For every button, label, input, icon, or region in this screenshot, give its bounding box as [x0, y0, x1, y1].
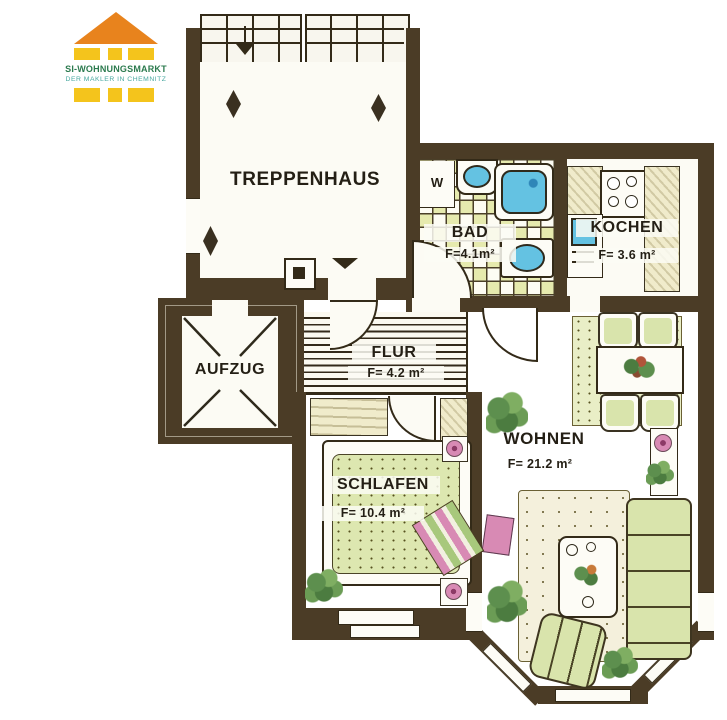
plant-icon [487, 578, 527, 626]
stove-icon [600, 170, 646, 218]
brand-tagline: DER MAKLER IN CHEMNITZ [62, 76, 170, 83]
burner [608, 196, 619, 207]
plant-icon [602, 646, 638, 680]
burner [625, 195, 638, 208]
door-opening [412, 296, 460, 312]
logo-block [128, 48, 154, 60]
stair-down-arrow-icon [236, 44, 254, 55]
sink-basin [463, 165, 491, 188]
bathtub-icon [494, 163, 554, 221]
stair-divider [300, 14, 307, 62]
coffee-table [558, 536, 618, 618]
floor-edge-line [466, 312, 468, 392]
wall [292, 392, 306, 640]
washer-label: W [420, 175, 454, 190]
logo-roof-icon [74, 12, 158, 44]
flower-icon [654, 434, 672, 452]
area-label-bad: F=4.1m² [424, 247, 516, 262]
bay-wall [538, 686, 648, 704]
logo-block [74, 88, 100, 102]
door-opening [570, 296, 600, 312]
flower-pot [440, 578, 468, 606]
window [698, 592, 714, 632]
floorplan-scan: SI-WOHNUNGSMARKT DER MAKLER IN CHEMNITZ … [0, 0, 727, 720]
door-opening [328, 278, 376, 300]
window [466, 592, 482, 632]
table-item [566, 544, 578, 556]
table-item [586, 542, 596, 552]
area-label-kochen: F= 3.6 m² [576, 248, 678, 263]
schlafen-door-arc [388, 396, 436, 442]
logo-block [108, 48, 122, 60]
room-label-bad: BAD [424, 224, 516, 242]
room-label-aufzug: AUFZUG [185, 362, 275, 378]
washing-machine-slot: W [420, 161, 455, 208]
tub-basin [501, 170, 547, 214]
logo-block [74, 48, 100, 60]
sofa [626, 498, 692, 660]
stair-arrow-stem [244, 26, 246, 44]
table-flowers-icon [620, 352, 658, 384]
area-label-schlafen: F= 10.4 m² [322, 506, 424, 521]
area-label-flur: F= 4.2 m² [348, 366, 444, 381]
tv-cabinet [481, 514, 514, 556]
room-label-schlafen: SCHLAFEN [326, 476, 440, 494]
flower-icon [445, 583, 462, 600]
burner [607, 177, 620, 190]
window [338, 610, 414, 625]
wall [698, 143, 714, 640]
room-label-treppenhaus: TREPPENHAUS [230, 170, 376, 189]
flower-icon [446, 440, 463, 457]
kitchen-counter [567, 166, 603, 218]
wall [406, 143, 714, 159]
table-item [582, 596, 594, 608]
brand-name: SI-WOHNUNGSMARKT [62, 64, 170, 74]
wardrobe [310, 398, 388, 436]
niche-core [293, 267, 305, 279]
dining-chair [600, 394, 640, 432]
dining-chair [638, 312, 678, 350]
area-label-wohnen: F= 21.2 m² [488, 458, 592, 471]
room-label-flur: FLUR [352, 344, 436, 362]
wall [555, 159, 567, 296]
room-label-kochen: KOCHEN [576, 219, 678, 237]
bathroom-sink-icon [456, 159, 498, 195]
wohnen-door-arc [482, 308, 538, 362]
logo-block [128, 88, 154, 102]
window [186, 198, 200, 254]
logo-block [108, 88, 122, 102]
window [350, 625, 420, 638]
window [555, 689, 631, 702]
dining-chair [598, 312, 638, 350]
burner [626, 176, 637, 187]
table-decor [568, 560, 606, 590]
down-arrow-icon [332, 258, 358, 269]
flower-pot [442, 436, 468, 462]
room-label-wohnen: WOHNEN [492, 430, 596, 447]
plant-icon [305, 568, 343, 604]
logo: SI-WOHNUNGSMARKT DER MAKLER IN CHEMNITZ [62, 12, 170, 106]
wall [186, 28, 200, 300]
wall-niche [284, 258, 316, 290]
dining-chair [640, 394, 680, 432]
plant-icon [646, 460, 674, 486]
partition-line [304, 392, 482, 395]
